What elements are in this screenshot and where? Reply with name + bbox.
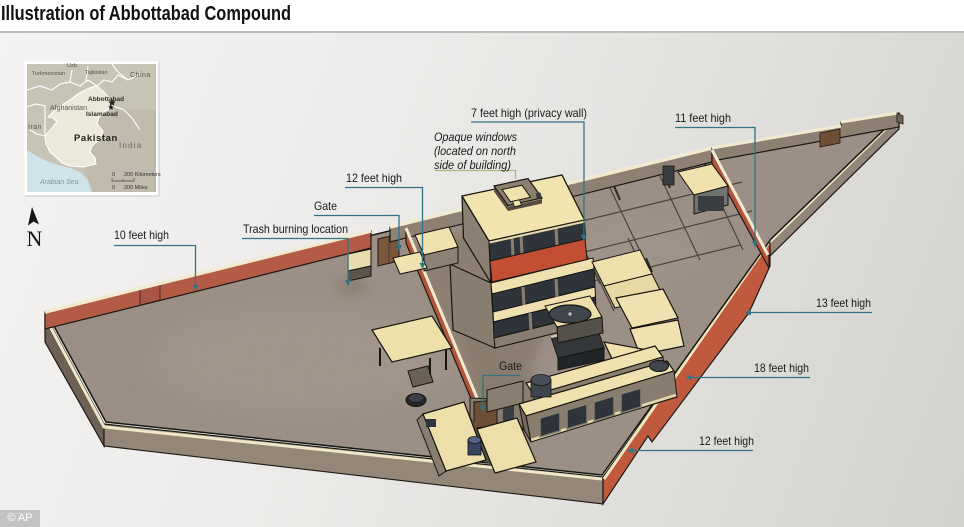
- svg-text:Arabian Sea: Arabian Sea: [39, 179, 79, 186]
- svg-text:Gate: Gate: [314, 199, 337, 213]
- svg-text:Turkmenistan: Turkmenistan: [32, 71, 65, 77]
- svg-text:13 feet high: 13 feet high: [816, 296, 871, 310]
- svg-text:0: 0: [112, 172, 115, 178]
- svg-text:11 feet high: 11 feet high: [675, 111, 731, 125]
- svg-text:Opaque windows: Opaque windows: [434, 130, 517, 144]
- svg-text:Gate: Gate: [499, 359, 522, 373]
- svg-text:Tajikistan: Tajikistan: [85, 70, 108, 76]
- svg-text:200 Kilometers: 200 Kilometers: [124, 172, 161, 178]
- svg-text:(located on north: (located on north: [434, 144, 516, 158]
- svg-text:Pakistan: Pakistan: [74, 133, 118, 144]
- svg-text:Afghanistan: Afghanistan: [50, 105, 87, 112]
- svg-text:side of building): side of building): [434, 158, 511, 172]
- svg-text:N: N: [27, 226, 43, 251]
- svg-text:7 feet high (privacy wall): 7 feet high (privacy wall): [471, 106, 587, 120]
- svg-text:200 Miles: 200 Miles: [124, 185, 148, 191]
- svg-text:Trash burning location: Trash burning location: [243, 222, 348, 236]
- svg-text:India: India: [119, 141, 142, 150]
- svg-text:0: 0: [112, 185, 115, 191]
- svg-text:10 feet high: 10 feet high: [114, 228, 169, 242]
- svg-text:12 feet high: 12 feet high: [699, 434, 754, 448]
- svg-text:Islamabad: Islamabad: [86, 111, 118, 118]
- svg-text:China: China: [130, 72, 151, 79]
- svg-text:Abbottabad: Abbottabad: [88, 96, 124, 103]
- svg-text:12 feet high: 12 feet high: [346, 171, 402, 185]
- svg-text:Iran: Iran: [28, 124, 42, 131]
- svg-text:Uzb.: Uzb.: [67, 63, 79, 69]
- svg-text:18 feet high: 18 feet high: [754, 361, 809, 375]
